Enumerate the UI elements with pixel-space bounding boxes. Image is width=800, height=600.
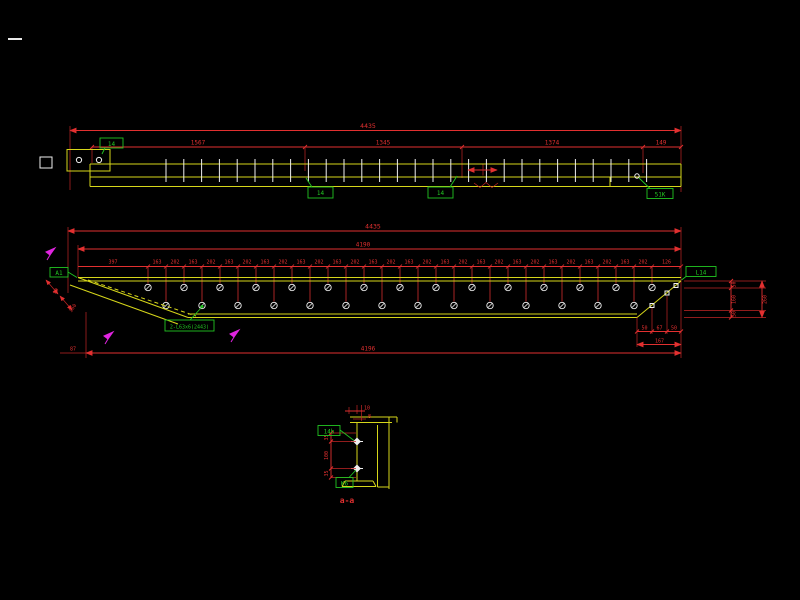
part-label: A1 bbox=[55, 270, 63, 277]
leader-line bbox=[68, 272, 77, 278]
spacing-dim-text: 163 bbox=[224, 260, 233, 266]
section-outline bbox=[342, 417, 397, 489]
part-label: 14 bbox=[317, 190, 325, 197]
bolt-hole bbox=[96, 157, 101, 162]
spacing-dim-text: 163 bbox=[296, 260, 305, 266]
bolt-hole-slash bbox=[614, 286, 618, 290]
leader-dot bbox=[201, 305, 204, 308]
section-title: a-a bbox=[340, 496, 355, 505]
part-label: 51K bbox=[655, 192, 666, 199]
spacing-dim-text: 163 bbox=[548, 260, 557, 266]
leader-line bbox=[682, 277, 687, 281]
bolt-hole-slash bbox=[470, 286, 474, 290]
dim-text: 4196 bbox=[361, 346, 376, 353]
bolt-hole bbox=[635, 174, 639, 178]
leader-line bbox=[349, 470, 356, 478]
spacing-dim-text: 202 bbox=[242, 260, 251, 266]
dim-text: 160 bbox=[732, 295, 738, 304]
cad-viewport: 4435 1567 1345 1374 149 bbox=[0, 0, 800, 600]
small-detail-box bbox=[40, 157, 52, 168]
spacing-dim-text: 163 bbox=[188, 260, 197, 266]
dim-text: 10 bbox=[364, 406, 370, 412]
spacing-dim-text: 202 bbox=[458, 260, 467, 266]
bolt-hole-slash bbox=[146, 286, 150, 290]
part-label: 14 bbox=[108, 141, 116, 148]
spacing-dim-text: 126 bbox=[662, 260, 671, 266]
spacing-dim-text: 163 bbox=[476, 260, 485, 266]
dim-text: 50 bbox=[671, 326, 677, 332]
leader-line bbox=[102, 148, 105, 154]
top-view: 4435 1567 1345 1374 149 bbox=[67, 122, 683, 199]
bolt-hole-slash bbox=[236, 304, 240, 308]
stiffener-ticks bbox=[166, 159, 647, 182]
dim-text: 160 bbox=[68, 303, 78, 314]
spacing-dim-text: 202 bbox=[206, 260, 215, 266]
spacing-dims: 3971632021632021632021632021632021632021… bbox=[108, 260, 683, 269]
spacing-dim-text: 202 bbox=[386, 260, 395, 266]
bolt-hole-slash bbox=[506, 286, 510, 290]
spacing-dim-text: 163 bbox=[440, 260, 449, 266]
dim-text: 1567 bbox=[191, 140, 206, 147]
spacing-dim-text: 163 bbox=[584, 260, 593, 266]
section-mark bbox=[230, 330, 239, 342]
beam-outline bbox=[90, 164, 681, 187]
dim-text: 4190 bbox=[356, 242, 371, 249]
bolt-hole-slash bbox=[452, 304, 456, 308]
section-view: 35 100 35 10 8 14b K6 a-a bbox=[318, 405, 397, 505]
spacing-dim-text: 163 bbox=[152, 260, 161, 266]
section-mark bbox=[46, 248, 55, 260]
spacing-dim-text: 163 bbox=[260, 260, 269, 266]
spacing-dim-text: 163 bbox=[404, 260, 413, 266]
bolt-hole-slash bbox=[632, 304, 636, 308]
bolt-hole-slash bbox=[182, 286, 186, 290]
bolt-hole-slash bbox=[434, 286, 438, 290]
bolt-hole-slash bbox=[596, 304, 600, 308]
section-left-dims bbox=[329, 431, 356, 480]
spacing-dim-text: 202 bbox=[638, 260, 647, 266]
part-label: L14 bbox=[696, 270, 707, 277]
weld-detail bbox=[468, 165, 498, 188]
cad-canvas: 4435 1567 1345 1374 149 bbox=[0, 0, 800, 600]
section-top-dims bbox=[345, 405, 366, 421]
bolt-holes bbox=[145, 267, 655, 309]
bolt-hole-slash bbox=[398, 286, 402, 290]
dim-text: 260 bbox=[763, 295, 769, 304]
bolt-hole-slash bbox=[560, 304, 564, 308]
dim-text: 35 bbox=[324, 470, 330, 476]
dim-text: 50 bbox=[641, 326, 647, 332]
bolt-hole-slash bbox=[380, 304, 384, 308]
spacing-dim-text: 163 bbox=[620, 260, 629, 266]
left-diagonal-edge bbox=[78, 278, 188, 318]
bolt-hole-slash bbox=[362, 286, 366, 290]
spacing-dim-text: 163 bbox=[512, 260, 521, 266]
leader-line bbox=[306, 178, 312, 187]
dim-text: 67 bbox=[656, 326, 662, 332]
bolt-hole-slash bbox=[344, 304, 348, 308]
dim-text: 8 bbox=[368, 414, 371, 420]
bolt-hole-slash bbox=[254, 286, 258, 290]
spacing-dim-text: 202 bbox=[530, 260, 539, 266]
dim-text: 50 bbox=[732, 281, 738, 287]
part-label: 14b bbox=[324, 429, 335, 436]
spacing-dim-text: 202 bbox=[494, 260, 503, 266]
spacing-dim-text: 202 bbox=[314, 260, 323, 266]
spacing-dim-text: 163 bbox=[368, 260, 377, 266]
dim-text: 167 bbox=[655, 339, 664, 345]
dim-text: 50 bbox=[732, 311, 738, 317]
spacing-dim-text: 163 bbox=[332, 260, 341, 266]
section-mark bbox=[104, 332, 113, 344]
bolt-hole-slash bbox=[542, 286, 546, 290]
bolt-hole-slash bbox=[416, 304, 420, 308]
middle-view: 4435 4190 397163202163202163202163202163… bbox=[46, 223, 769, 359]
leader-line bbox=[340, 430, 354, 441]
member-label: 2-L63x6(2443) bbox=[170, 325, 209, 331]
dim-text-overall: 4435 bbox=[360, 122, 376, 130]
bolt-hole-slash bbox=[488, 304, 492, 308]
spacing-dim-text: 202 bbox=[566, 260, 575, 266]
spacing-dim-text: 202 bbox=[278, 260, 287, 266]
part-label: 14 bbox=[437, 190, 445, 197]
beam-outline bbox=[70, 278, 681, 325]
right-side-dims bbox=[684, 279, 766, 320]
bolt-hole-slash bbox=[326, 286, 330, 290]
spacing-dim-text: 202 bbox=[170, 260, 179, 266]
bolt-hole-slash bbox=[578, 286, 582, 290]
dim-text: 1374 bbox=[545, 140, 560, 147]
end-plate bbox=[67, 150, 110, 172]
bolt-hole bbox=[76, 157, 81, 162]
dim-text: 100 bbox=[324, 451, 330, 460]
bolt-hole-slash bbox=[218, 286, 222, 290]
bolt-hole-slash bbox=[272, 304, 276, 308]
dim-text-overall: 4435 bbox=[365, 223, 381, 231]
dim-text: 87 bbox=[70, 347, 76, 353]
part-label: K6 bbox=[341, 481, 349, 488]
spacing-dim-text: 397 bbox=[108, 260, 117, 266]
screen-artifacts bbox=[8, 39, 52, 168]
spacing-dim-text: 202 bbox=[422, 260, 431, 266]
dim-text: 1345 bbox=[376, 140, 391, 147]
spacing-dim-text: 202 bbox=[602, 260, 611, 266]
bolt-hole-slash bbox=[290, 286, 294, 290]
bolt-hole-slash bbox=[650, 286, 654, 290]
bolt-hole-slash bbox=[308, 304, 312, 308]
bolt-hole-slash bbox=[524, 304, 528, 308]
spacing-dim-text: 202 bbox=[350, 260, 359, 266]
dim-text: 149 bbox=[656, 140, 667, 147]
